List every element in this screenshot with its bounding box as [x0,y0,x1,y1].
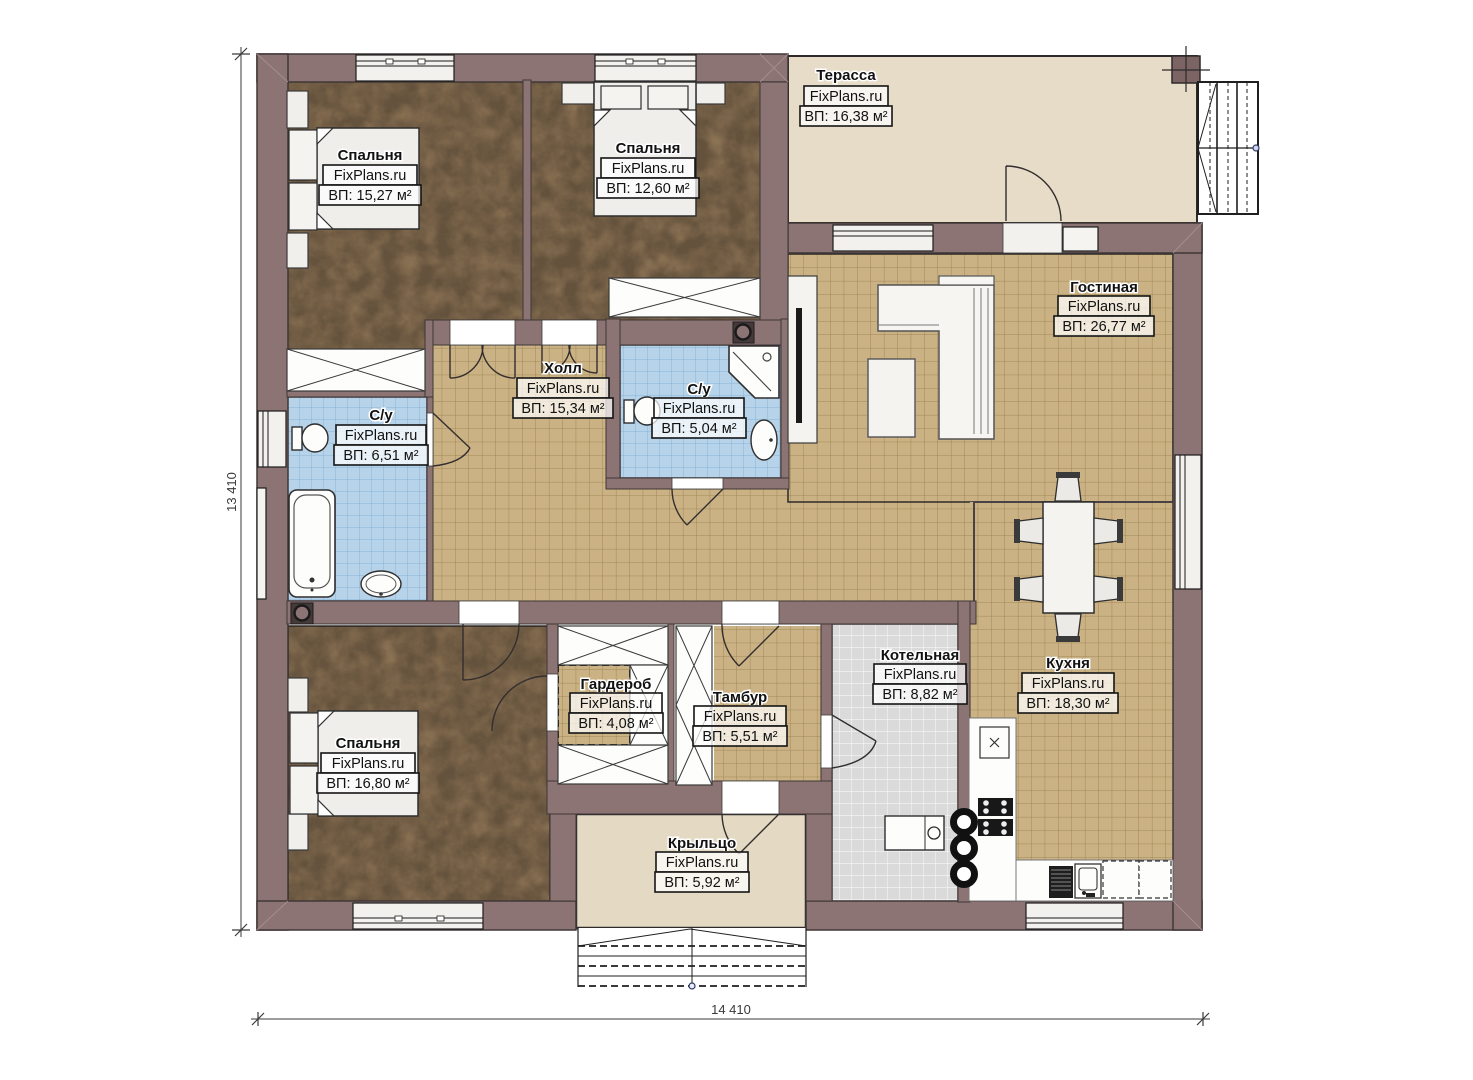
svg-text:ВП: 15,34 м²: ВП: 15,34 м² [521,401,604,417]
svg-text:Кухня: Кухня [1046,655,1090,672]
svg-text:FixPlans.ru: FixPlans.ru [1068,299,1141,315]
svg-text:ВП: 26,77 м²: ВП: 26,77 м² [1062,319,1145,335]
svg-text:Гардероб: Гардероб [581,676,652,693]
svg-text:FixPlans.ru: FixPlans.ru [580,696,653,712]
svg-text:Спальня: Спальня [336,735,401,752]
svg-text:FixPlans.ru: FixPlans.ru [663,401,736,417]
svg-text:С/у: С/у [687,381,711,398]
svg-text:Гостиная: Гостиная [1070,279,1138,296]
svg-text:ВП: 16,38 м²: ВП: 16,38 м² [804,109,887,125]
svg-text:Крыльцо: Крыльцо [668,835,736,852]
svg-text:Тамбур: Тамбур [713,689,767,706]
svg-text:13 410: 13 410 [224,472,239,512]
svg-text:FixPlans.ru: FixPlans.ru [1032,676,1105,692]
svg-text:FixPlans.ru: FixPlans.ru [884,667,957,683]
svg-text:ВП: 16,80 м²: ВП: 16,80 м² [326,776,409,792]
svg-text:ВП: 4,08 м²: ВП: 4,08 м² [578,716,653,732]
svg-text:FixPlans.ru: FixPlans.ru [334,168,407,184]
svg-text:ВП: 18,30 м²: ВП: 18,30 м² [1026,696,1109,712]
svg-text:14 410: 14 410 [711,1002,751,1017]
svg-text:ВП: 8,82 м²: ВП: 8,82 м² [882,687,957,703]
svg-text:FixPlans.ru: FixPlans.ru [332,756,405,772]
svg-text:С/у: С/у [369,407,393,424]
svg-text:Котельная: Котельная [881,647,960,664]
svg-text:FixPlans.ru: FixPlans.ru [704,709,777,725]
svg-text:ВП: 6,51 м²: ВП: 6,51 м² [343,448,418,464]
svg-text:FixPlans.ru: FixPlans.ru [527,381,600,397]
svg-text:FixPlans.ru: FixPlans.ru [612,161,685,177]
svg-text:Спальня: Спальня [616,140,681,157]
svg-text:ВП: 5,51 м²: ВП: 5,51 м² [702,729,777,745]
svg-text:Спальня: Спальня [338,147,403,164]
svg-text:Терасса: Терасса [816,67,876,84]
svg-text:ВП: 5,04 м²: ВП: 5,04 м² [661,421,736,437]
svg-text:FixPlans.ru: FixPlans.ru [666,855,739,871]
svg-text:ВП: 12,60 м²: ВП: 12,60 м² [606,181,689,197]
svg-text:FixPlans.ru: FixPlans.ru [345,428,418,444]
svg-text:ВП: 5,92 м²: ВП: 5,92 м² [664,875,739,891]
svg-text:FixPlans.ru: FixPlans.ru [810,89,883,105]
svg-text:ВП: 15,27 м²: ВП: 15,27 м² [328,188,411,204]
svg-text:Холл: Холл [544,360,582,377]
